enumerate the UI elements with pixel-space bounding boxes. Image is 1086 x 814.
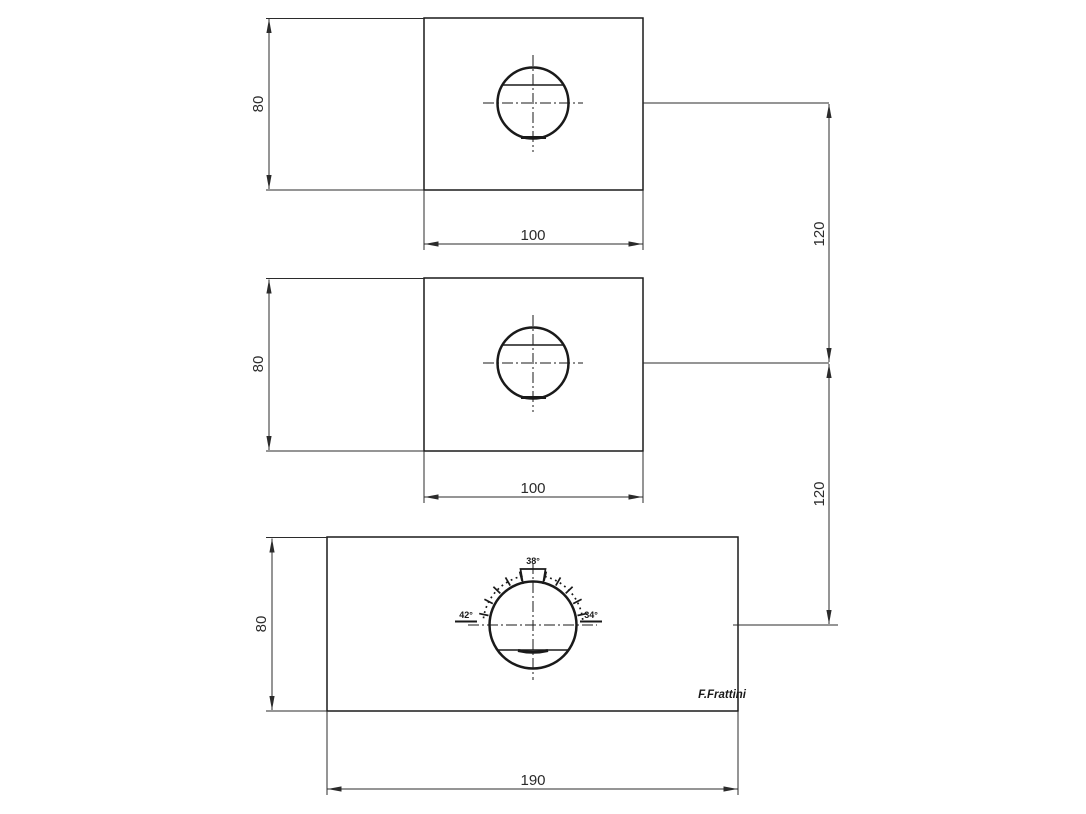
dim-height-80: 80 (250, 19, 424, 191)
dial-dotted-arc-left (483, 576, 522, 620)
dim-width-100: 100 (424, 451, 643, 503)
dim-spacing-120-upper: 120 (811, 104, 829, 362)
bottom-flat (518, 651, 548, 653)
dim-height-80: 80 (253, 538, 327, 712)
dimension-value: 120 (811, 221, 828, 246)
dial-dotted-arc-right (543, 576, 582, 620)
dimension-value: 80 (253, 616, 270, 633)
drawing-svg: 80 100 80 100 (0, 0, 1086, 814)
top-view: 80 100 (250, 18, 829, 250)
dimension-value: 80 (250, 356, 267, 373)
dimension-value: 80 (250, 96, 267, 113)
middle-view: 80 100 (250, 278, 829, 503)
dimension-value: 100 (520, 480, 545, 497)
dim-spacing-120-lower: 120 (811, 364, 829, 624)
dimension-value: 120 (811, 481, 828, 506)
dim-width-100: 100 (424, 190, 643, 250)
spacing-dimensions: 120 120 (811, 104, 829, 624)
dimension-value: 190 (520, 772, 545, 789)
dim-width-190: 190 (327, 711, 738, 795)
cad-drawing-sheet: 80 100 80 100 (0, 0, 1086, 814)
dial-label-left: 42° (459, 610, 473, 620)
bottom-view: 42° 38° 34° F.Frattini 80 190 (253, 537, 838, 795)
dimension-value: 100 (520, 227, 545, 244)
dim-height-80: 80 (250, 279, 424, 452)
dial-label-right: 34° (584, 610, 598, 620)
plate-outline (424, 278, 643, 451)
brand-logo: F.Frattini (698, 689, 747, 701)
